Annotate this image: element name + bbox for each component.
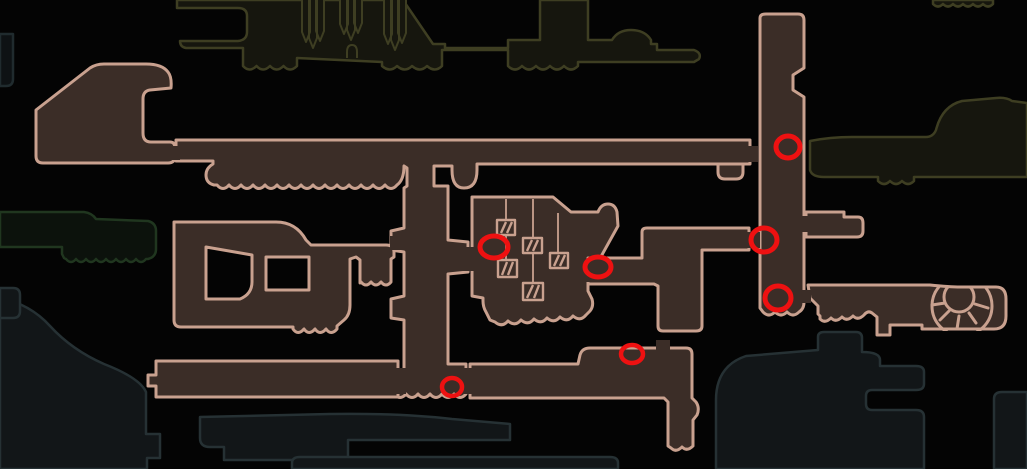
doorway-rightshaft-secorridor [799, 290, 811, 303]
doorway-shaft-village [462, 247, 476, 271]
teal-room-bottom-left-blob [0, 298, 160, 469]
room-bottom-left-corridor [148, 361, 398, 397]
room-right-arm [806, 212, 863, 237]
teal-room-right-edge [994, 392, 1027, 469]
doorway-corridor-rightshaft [744, 146, 758, 162]
game-map [0, 0, 1027, 469]
teal-stub-top-left [0, 34, 13, 86]
teal-room-bottom-mid [200, 414, 510, 460]
olive-band-top [177, 0, 700, 70]
room-corridor-ledge [718, 164, 743, 179]
olive-claws-cluster-3 [384, 0, 406, 50]
doorway-bottomleft-shaftfoot [392, 368, 406, 394]
room-west-blob [36, 64, 175, 163]
room-east-link-junction [588, 228, 749, 331]
room-left-complex [174, 222, 394, 333]
teal-room-bottom-right [716, 332, 924, 469]
teal-stub-left [0, 288, 20, 318]
doorway-junction-lowercorridor [656, 340, 670, 354]
teal-room-bottom-center [292, 457, 618, 469]
game-map-canvas [0, 0, 1027, 469]
doorway-blob-corridor [168, 146, 180, 160]
room-southeast-corridor [808, 285, 1006, 335]
adjacent-area-green [0, 212, 156, 262]
doorway-rightshaft-arm [800, 216, 810, 232]
olive-claws-cluster-1 [302, 0, 324, 48]
olive-area-right [810, 98, 1027, 184]
doorway-leftrooms-shaft-upper [390, 236, 406, 250]
olive-piece-top-right [933, 0, 993, 7]
green-room-left-bar [0, 212, 156, 262]
room-right-shaft [760, 14, 804, 315]
